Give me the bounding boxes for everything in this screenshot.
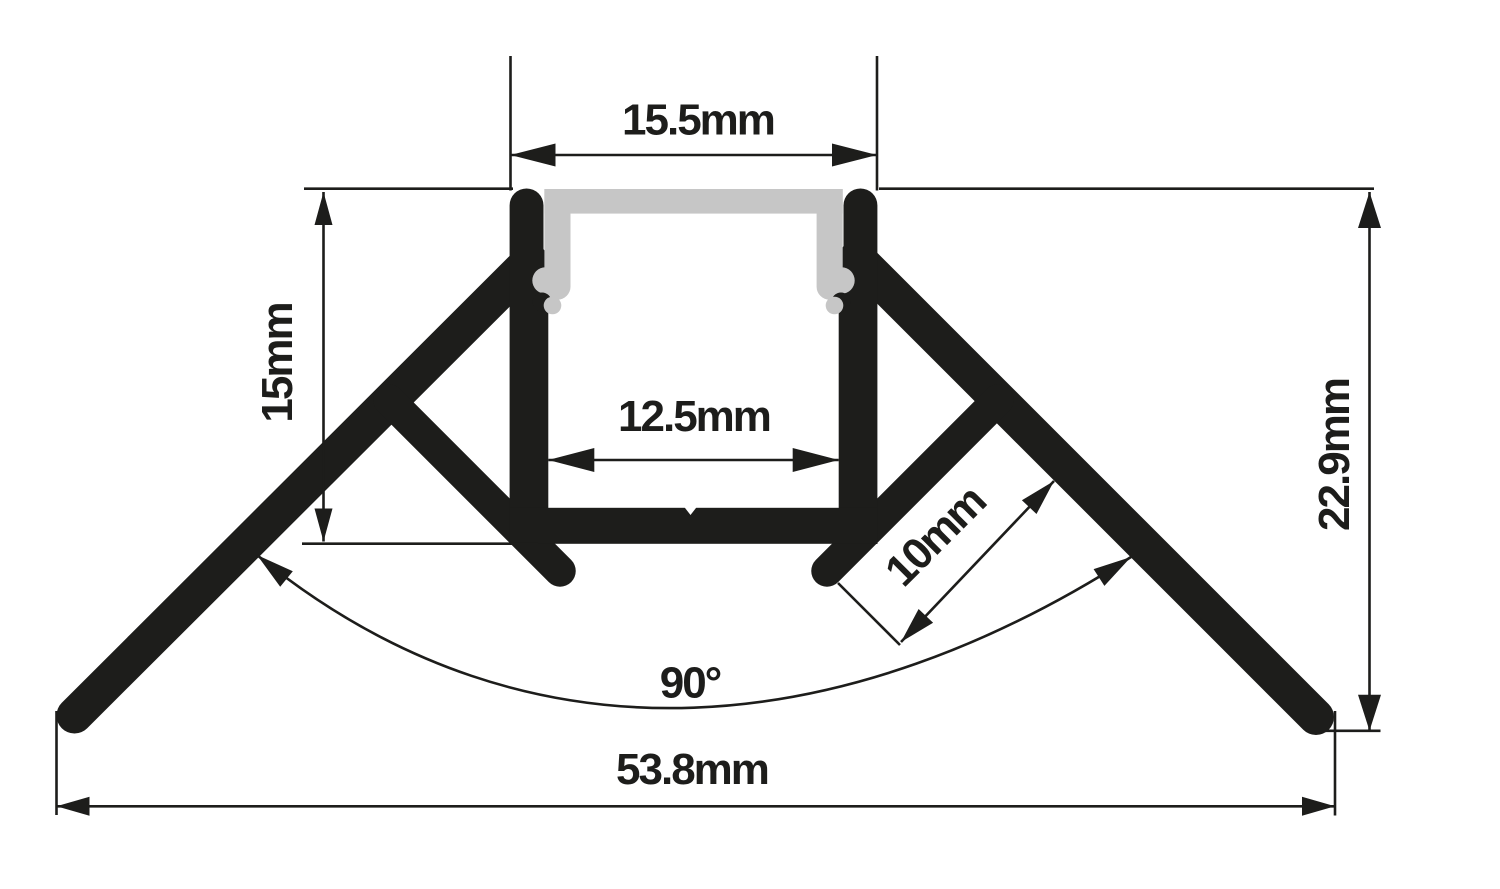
svg-text:53.8mm: 53.8mm	[616, 745, 768, 794]
svg-text:12.5mm: 12.5mm	[618, 392, 770, 441]
svg-text:90°: 90°	[660, 659, 721, 708]
svg-text:15mm: 15mm	[253, 303, 302, 422]
svg-text:15.5mm: 15.5mm	[622, 96, 774, 145]
svg-text:22.9mm: 22.9mm	[1310, 379, 1359, 531]
